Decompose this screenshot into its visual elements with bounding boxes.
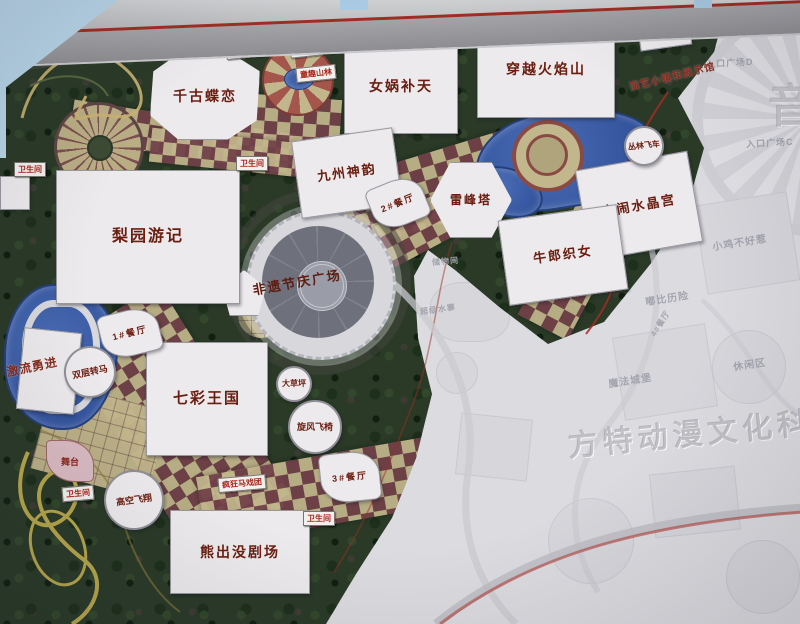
entrance-plaza-c: 入口广场C (746, 135, 794, 150)
fan-plaza-center (87, 135, 113, 161)
ghost-shape (436, 352, 478, 394)
ghost-shape (649, 466, 741, 539)
liyuan-youji: 梨园游记 (56, 170, 240, 304)
wc-2: 卫生间 (236, 156, 268, 171)
chuwujian: 储物间 (432, 255, 460, 268)
dubi-lixian: 嘟比历险 (644, 287, 690, 309)
crystal-island (512, 120, 584, 192)
qiangu-dielian: 千古蝶恋 (150, 52, 260, 140)
small-building (0, 176, 30, 210)
wc-4: 卫生间 (303, 511, 335, 526)
wc-3: 卫生间 (61, 485, 94, 503)
sky-gap (340, 0, 368, 10)
sky-edge-left (0, 86, 6, 158)
dacaoping: 大草坪 (276, 366, 312, 402)
sky-gap (694, 0, 712, 8)
edge-character: 音 (768, 70, 800, 136)
park-map-photo: 方特动漫文化科技 音 (0, 0, 800, 624)
ghost-shape (726, 540, 800, 614)
xiongchumo-juchang: 熊出没剧场 (170, 510, 310, 594)
xuanfeng-feiyi: 旋风飞椅 (288, 400, 342, 454)
crystal-ring (526, 134, 568, 176)
ghost-shape (548, 498, 634, 584)
ghost-shape (455, 412, 533, 481)
niulang-zhinv: 牛郎织女 (498, 204, 629, 306)
qicai-wangguo: 七彩王国 (146, 342, 268, 456)
wc-1: 卫生间 (14, 162, 46, 177)
